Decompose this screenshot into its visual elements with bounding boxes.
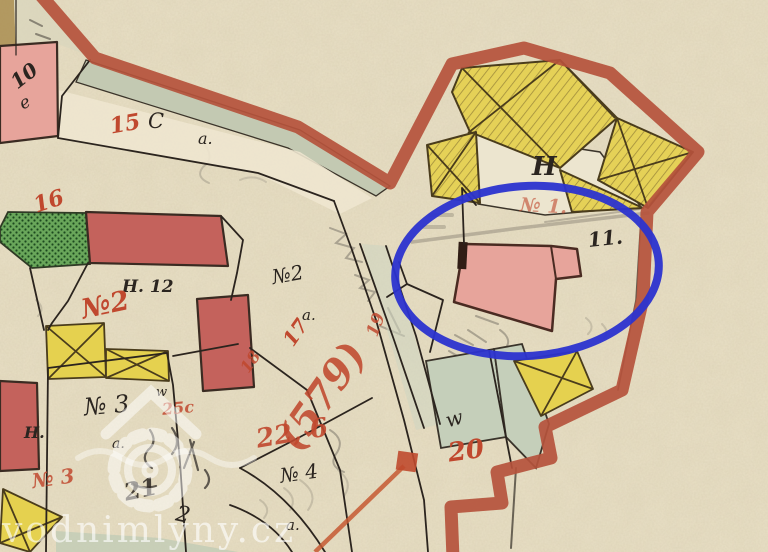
building-11-entrance-mark bbox=[457, 242, 467, 269]
parcel-label-15: 15 bbox=[108, 109, 143, 140]
parcel-label-20: 20 bbox=[445, 434, 486, 469]
house-label-11: 11. bbox=[587, 224, 624, 252]
label-C: C bbox=[148, 109, 164, 133]
watermark-text: vodnimlyny.cz bbox=[1, 510, 296, 551]
label-a1: a. bbox=[198, 129, 213, 148]
label-H2: H. bbox=[23, 423, 45, 442]
building-12-main bbox=[86, 212, 228, 266]
survey-point bbox=[396, 451, 418, 473]
meadow-w bbox=[426, 349, 506, 448]
building-10 bbox=[0, 42, 58, 143]
label-no1: № 1. bbox=[518, 194, 567, 218]
cadastral-map-screenshot: 10 e 15 C a. 16 H. 12 №2 №2 a. 17 18 (57… bbox=[0, 0, 768, 552]
label-H12: H. 12 bbox=[121, 277, 174, 297]
building-12-wing bbox=[197, 295, 254, 391]
label-H-big: H bbox=[531, 152, 558, 182]
map-canvas: 10 e 15 C a. 16 H. 12 №2 №2 a. 17 18 (57… bbox=[0, 0, 768, 552]
